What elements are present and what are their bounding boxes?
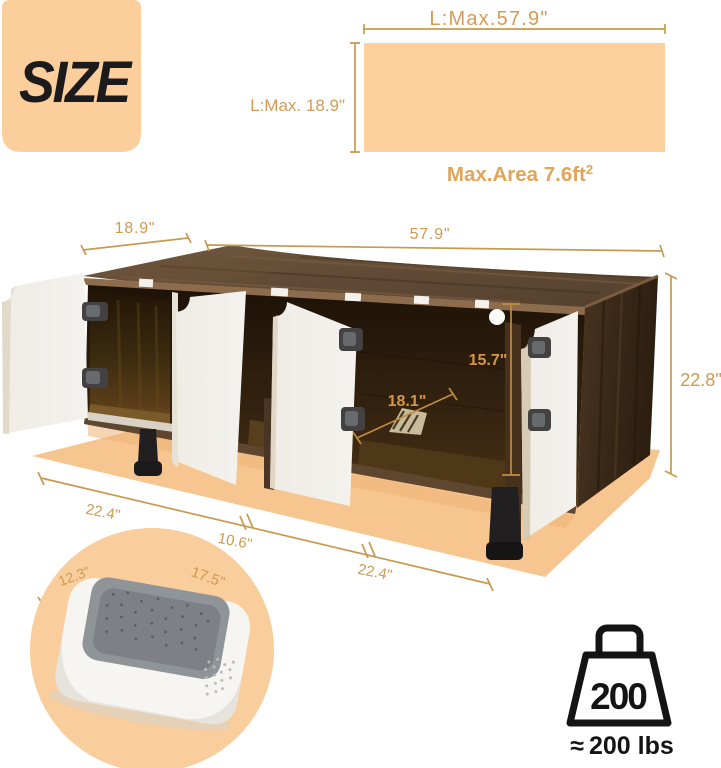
svg-text:18.1": 18.1" xyxy=(388,393,427,410)
svg-text:≈ 200 lbs: ≈ 200 lbs xyxy=(570,732,674,760)
svg-text:57.9": 57.9" xyxy=(410,226,451,243)
svg-text:L:Max. 18.9": L:Max. 18.9" xyxy=(250,96,345,115)
svg-text:15.7": 15.7" xyxy=(469,352,508,369)
svg-text:SIZE: SIZE xyxy=(19,50,133,115)
svg-text:Max.Area 7.6ft2: Max.Area 7.6ft2 xyxy=(447,162,593,186)
svg-text:22.4": 22.4" xyxy=(356,561,393,584)
svg-text:22.8": 22.8" xyxy=(680,370,721,390)
svg-text:L:Max.57.9": L:Max.57.9" xyxy=(429,8,548,30)
svg-text:200: 200 xyxy=(590,676,647,717)
svg-text:18.9": 18.9" xyxy=(115,220,156,237)
svg-text:22.4": 22.4" xyxy=(84,501,121,524)
svg-text:10.6": 10.6" xyxy=(216,530,253,553)
